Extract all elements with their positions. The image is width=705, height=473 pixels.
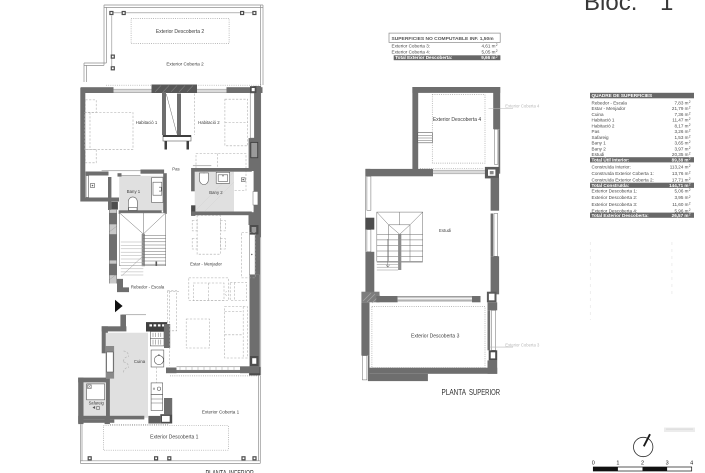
svg-text:Habitació 1: Habitació 1 bbox=[592, 118, 615, 123]
svg-text:Exterior Coberta 2: Exterior Coberta 2 bbox=[166, 62, 204, 67]
svg-text:Estudi: Estudi bbox=[592, 152, 605, 157]
svg-text:0: 0 bbox=[592, 461, 595, 467]
svg-text:2: 2 bbox=[689, 146, 691, 150]
svg-text:Estudi: Estudi bbox=[439, 228, 451, 233]
svg-text:3,97 m: 3,97 m bbox=[674, 146, 688, 151]
svg-text:7,83 m: 7,83 m bbox=[674, 100, 688, 105]
svg-text:11,47 m: 11,47 m bbox=[672, 118, 688, 123]
svg-text:21,79 m: 21,79 m bbox=[672, 106, 689, 111]
svg-text:1: 1 bbox=[660, 0, 673, 16]
svg-text:Exterior Descoberta 1:: Exterior Descoberta 1: bbox=[592, 189, 638, 194]
svg-text:Habitació 1: Habitació 1 bbox=[136, 120, 158, 125]
svg-text:Rebedor - Escala: Rebedor - Escala bbox=[131, 285, 165, 290]
svg-text:20,35 m: 20,35 m bbox=[672, 152, 689, 157]
svg-text:Exterior Coberta 4:: Exterior Coberta 4: bbox=[392, 50, 431, 55]
svg-text:Exterior Descoberta 2:: Exterior Descoberta 2: bbox=[592, 195, 638, 200]
svg-text:Habitació 2: Habitació 2 bbox=[198, 120, 220, 125]
svg-text:2: 2 bbox=[689, 188, 691, 192]
svg-text:2: 2 bbox=[689, 106, 691, 110]
svg-text:INFERIOR: INFERIOR bbox=[229, 468, 254, 473]
svg-text:Pas: Pas bbox=[172, 167, 179, 172]
svg-text:9,66 m: 9,66 m bbox=[481, 55, 495, 60]
svg-text:Bloc.: Bloc. bbox=[584, 0, 637, 16]
svg-text:1,53 m: 1,53 m bbox=[674, 135, 688, 140]
svg-text:1: 1 bbox=[616, 461, 619, 467]
svg-text:89,38 m: 89,38 m bbox=[672, 157, 689, 162]
svg-text:Total Exterior Descoberta:: Total Exterior Descoberta: bbox=[395, 55, 453, 60]
svg-text:Bany 2: Bany 2 bbox=[592, 146, 607, 151]
svg-text:2: 2 bbox=[689, 164, 691, 168]
svg-text:Rebedor - Escala: Rebedor - Escala bbox=[592, 100, 628, 105]
svg-text:13,76 m: 13,76 m bbox=[672, 171, 689, 176]
svg-text:Construïda Interior:: Construïda Interior: bbox=[592, 164, 631, 169]
svg-text:2: 2 bbox=[689, 183, 691, 187]
svg-text:2: 2 bbox=[689, 134, 691, 138]
svg-text:SUPERFICIES NO COMPUTABLE INF.: SUPERFICIES NO COMPUTABLE INF. 1,50m bbox=[392, 36, 495, 42]
svg-text:2: 2 bbox=[496, 43, 498, 47]
svg-text:3: 3 bbox=[666, 461, 669, 467]
svg-text:144,71 m: 144,71 m bbox=[669, 183, 688, 188]
svg-text:4,61 m: 4,61 m bbox=[481, 44, 495, 49]
svg-text:Bany 1: Bany 1 bbox=[127, 189, 141, 194]
svg-text:2: 2 bbox=[689, 157, 691, 161]
svg-text:Pas: Pas bbox=[592, 129, 601, 134]
svg-text:Exterior Descoberta 3: Exterior Descoberta 3 bbox=[411, 333, 460, 339]
svg-text:Exterior Descoberta 2: Exterior Descoberta 2 bbox=[156, 29, 205, 35]
svg-text:2: 2 bbox=[689, 212, 691, 216]
svg-text:2: 2 bbox=[689, 111, 691, 115]
svg-text:Total Construïda:: Total Construïda: bbox=[592, 183, 630, 188]
svg-text:Exterior Coberta 4: Exterior Coberta 4 bbox=[505, 104, 540, 109]
svg-text:Exterior Descoberta 1: Exterior Descoberta 1 bbox=[150, 434, 199, 440]
svg-text:2: 2 bbox=[641, 461, 644, 467]
svg-text:PLANTA: PLANTA bbox=[206, 468, 227, 473]
svg-text:Exterior Coberta 1: Exterior Coberta 1 bbox=[202, 409, 240, 414]
svg-text:Bany 2: Bany 2 bbox=[209, 190, 223, 195]
svg-text:7,36 m: 7,36 m bbox=[674, 112, 688, 117]
svg-text:2: 2 bbox=[496, 55, 498, 59]
svg-text:2: 2 bbox=[689, 177, 691, 181]
svg-text:113,24 m: 113,24 m bbox=[670, 164, 689, 169]
svg-text:26,57 m: 26,57 m bbox=[672, 213, 689, 218]
svg-text:QUADRE DE SUPERFICIES: QUADRE DE SUPERFICIES bbox=[592, 93, 653, 98]
svg-text:2: 2 bbox=[689, 123, 691, 127]
svg-text:Cuina: Cuina bbox=[134, 359, 146, 364]
svg-text:2: 2 bbox=[689, 201, 691, 205]
svg-text:17,71 m: 17,71 m bbox=[672, 178, 689, 183]
svg-text:Estar - Menjador: Estar - Menjador bbox=[592, 106, 626, 111]
svg-text:5,05 m: 5,05 m bbox=[481, 50, 495, 55]
svg-text:SUPERIOR: SUPERIOR bbox=[469, 387, 500, 397]
svg-text:2: 2 bbox=[689, 140, 691, 144]
svg-text:Estar - Menjador: Estar - Menjador bbox=[190, 262, 222, 267]
svg-text:3,95 m: 3,95 m bbox=[674, 195, 688, 200]
svg-text:2: 2 bbox=[689, 152, 691, 156]
svg-text:3,26 m: 3,26 m bbox=[674, 129, 688, 134]
svg-text:2: 2 bbox=[689, 117, 691, 121]
svg-text:2: 2 bbox=[496, 49, 498, 53]
svg-text:Bany 1: Bany 1 bbox=[592, 141, 607, 146]
svg-text:2: 2 bbox=[689, 195, 691, 199]
svg-text:Cuina: Cuina bbox=[592, 112, 604, 117]
svg-text:11,60 m: 11,60 m bbox=[672, 202, 688, 207]
svg-text:2: 2 bbox=[689, 171, 691, 175]
svg-text:Safareig: Safareig bbox=[592, 135, 610, 140]
svg-text:3,65 m: 3,65 m bbox=[674, 141, 688, 146]
svg-text:5,06 m: 5,06 m bbox=[674, 189, 688, 194]
svg-text:Safareig: Safareig bbox=[89, 401, 105, 406]
svg-text:2: 2 bbox=[689, 208, 691, 212]
svg-text:2: 2 bbox=[689, 129, 691, 133]
svg-text:Total Útil Interior:: Total Útil Interior: bbox=[592, 156, 630, 162]
svg-text:4: 4 bbox=[690, 461, 693, 467]
svg-text:Construïda Exterior Coberta 2:: Construïda Exterior Coberta 2: bbox=[592, 178, 654, 183]
svg-text:Exterior Descoberta 4: Exterior Descoberta 4 bbox=[433, 117, 482, 123]
svg-text:Total Exterior Descoberta:: Total Exterior Descoberta: bbox=[592, 213, 650, 218]
svg-text:Exterior Coberta 3: Exterior Coberta 3 bbox=[505, 342, 540, 347]
svg-text:8,17 m: 8,17 m bbox=[674, 123, 688, 128]
svg-text:2: 2 bbox=[689, 100, 691, 104]
svg-text:Construïda Exterior Coberta 1:: Construïda Exterior Coberta 1: bbox=[592, 171, 654, 176]
svg-text:Habitació 2: Habitació 2 bbox=[592, 123, 615, 128]
svg-text:PLANTA: PLANTA bbox=[442, 387, 467, 397]
svg-text:Exterior Descoberta 3:: Exterior Descoberta 3: bbox=[592, 202, 638, 207]
svg-text:Exterior Coberta 3:: Exterior Coberta 3: bbox=[392, 44, 431, 49]
